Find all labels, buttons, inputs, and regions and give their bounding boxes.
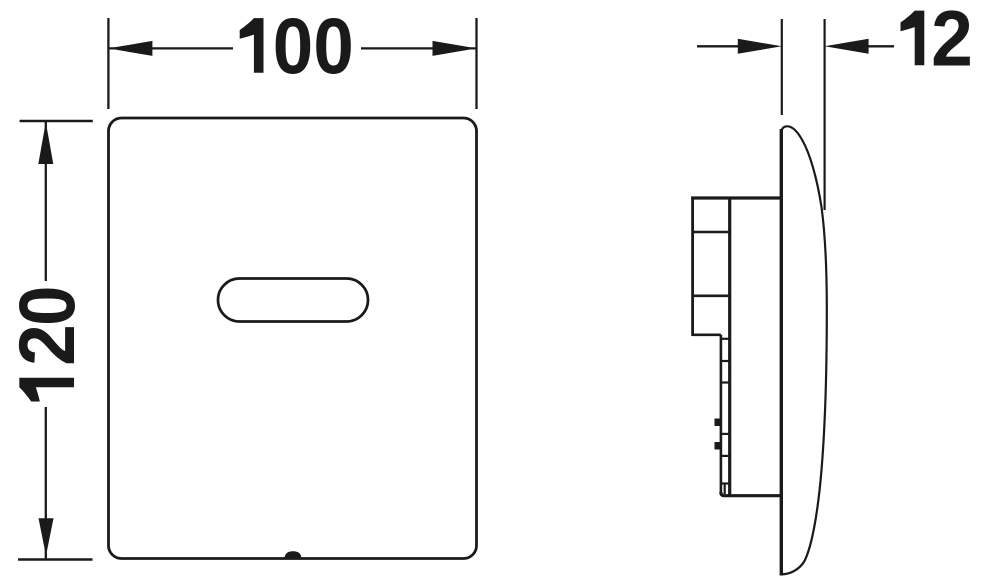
svg-text:2: 2 bbox=[931, 0, 973, 83]
svg-text:0: 0 bbox=[3, 285, 91, 325]
svg-text:0: 0 bbox=[313, 2, 353, 90]
svg-text:2: 2 bbox=[3, 324, 91, 366]
svg-text:0: 0 bbox=[273, 2, 313, 90]
